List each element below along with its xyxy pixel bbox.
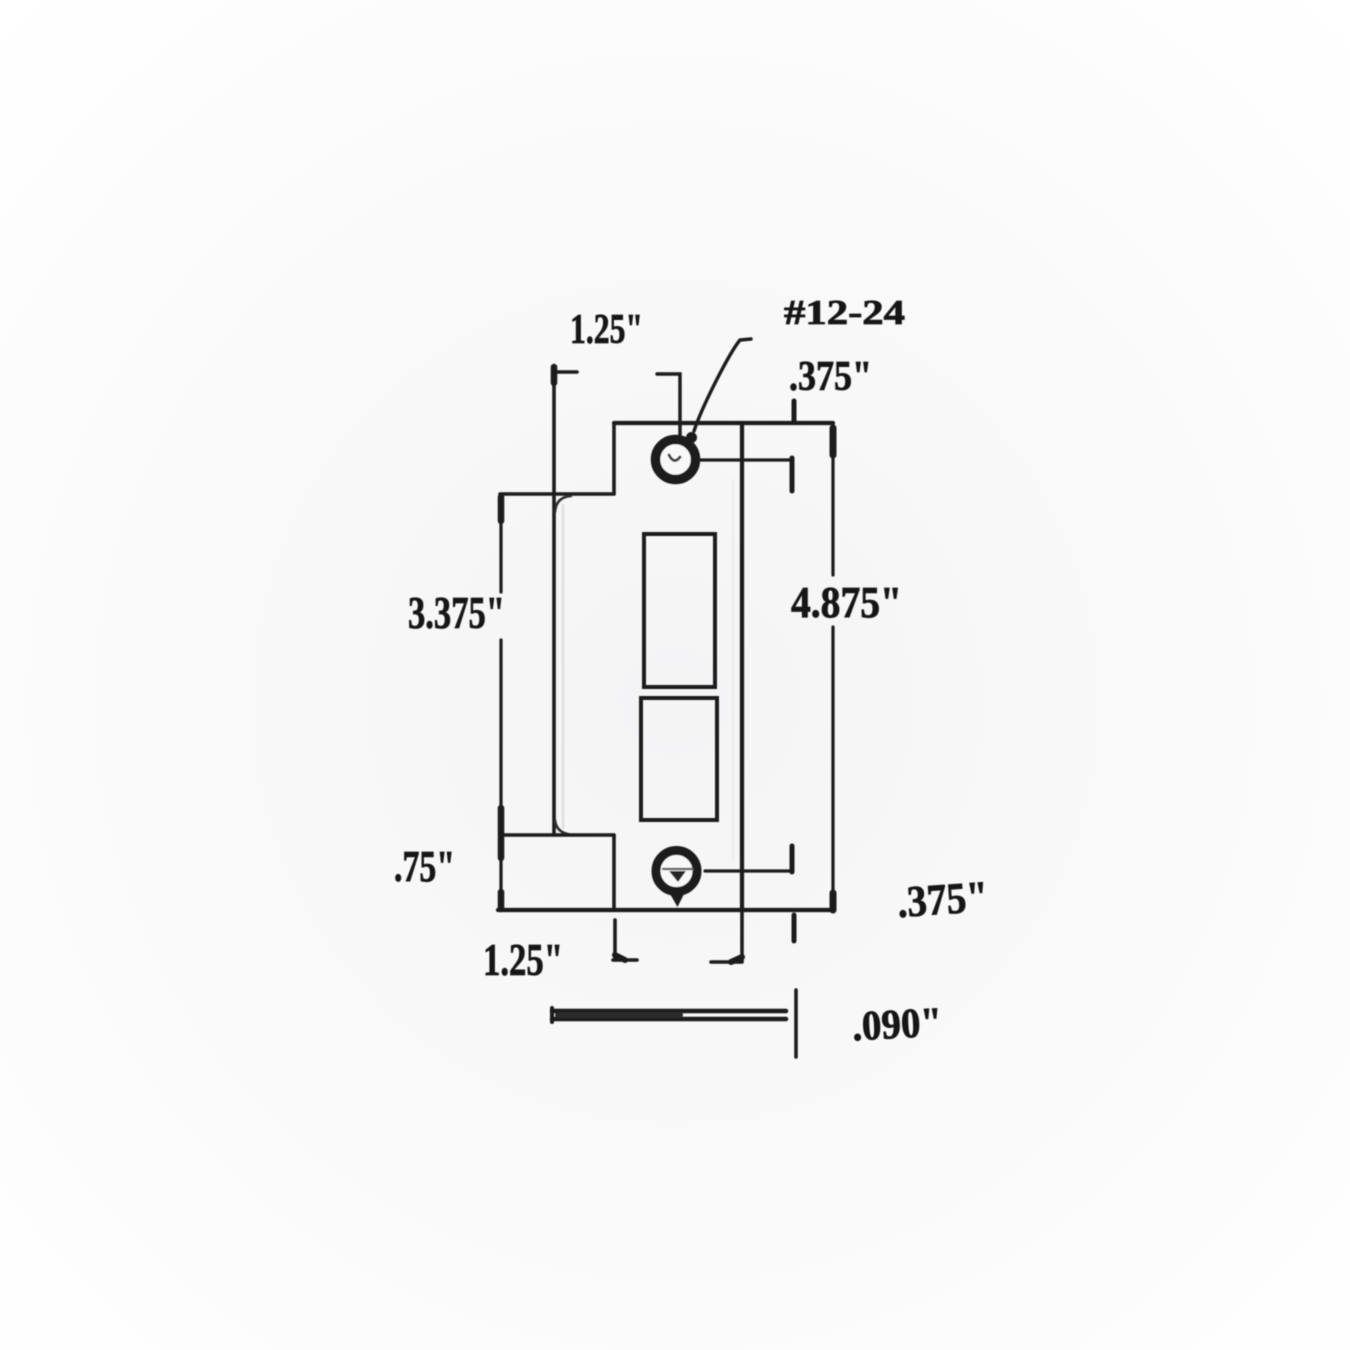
svg-text:.090": .090" <box>851 1000 943 1051</box>
svg-text:#12-24: #12-24 <box>784 293 905 332</box>
svg-text:.375": .375" <box>789 354 872 400</box>
svg-text:3.375": 3.375" <box>408 587 505 638</box>
svg-text:.75": .75" <box>394 842 455 891</box>
svg-text:.375": .375" <box>896 872 990 927</box>
svg-text:4.875": 4.875" <box>791 578 902 627</box>
svg-text:1.25": 1.25" <box>570 307 643 353</box>
svg-text:1.25": 1.25" <box>483 934 563 985</box>
